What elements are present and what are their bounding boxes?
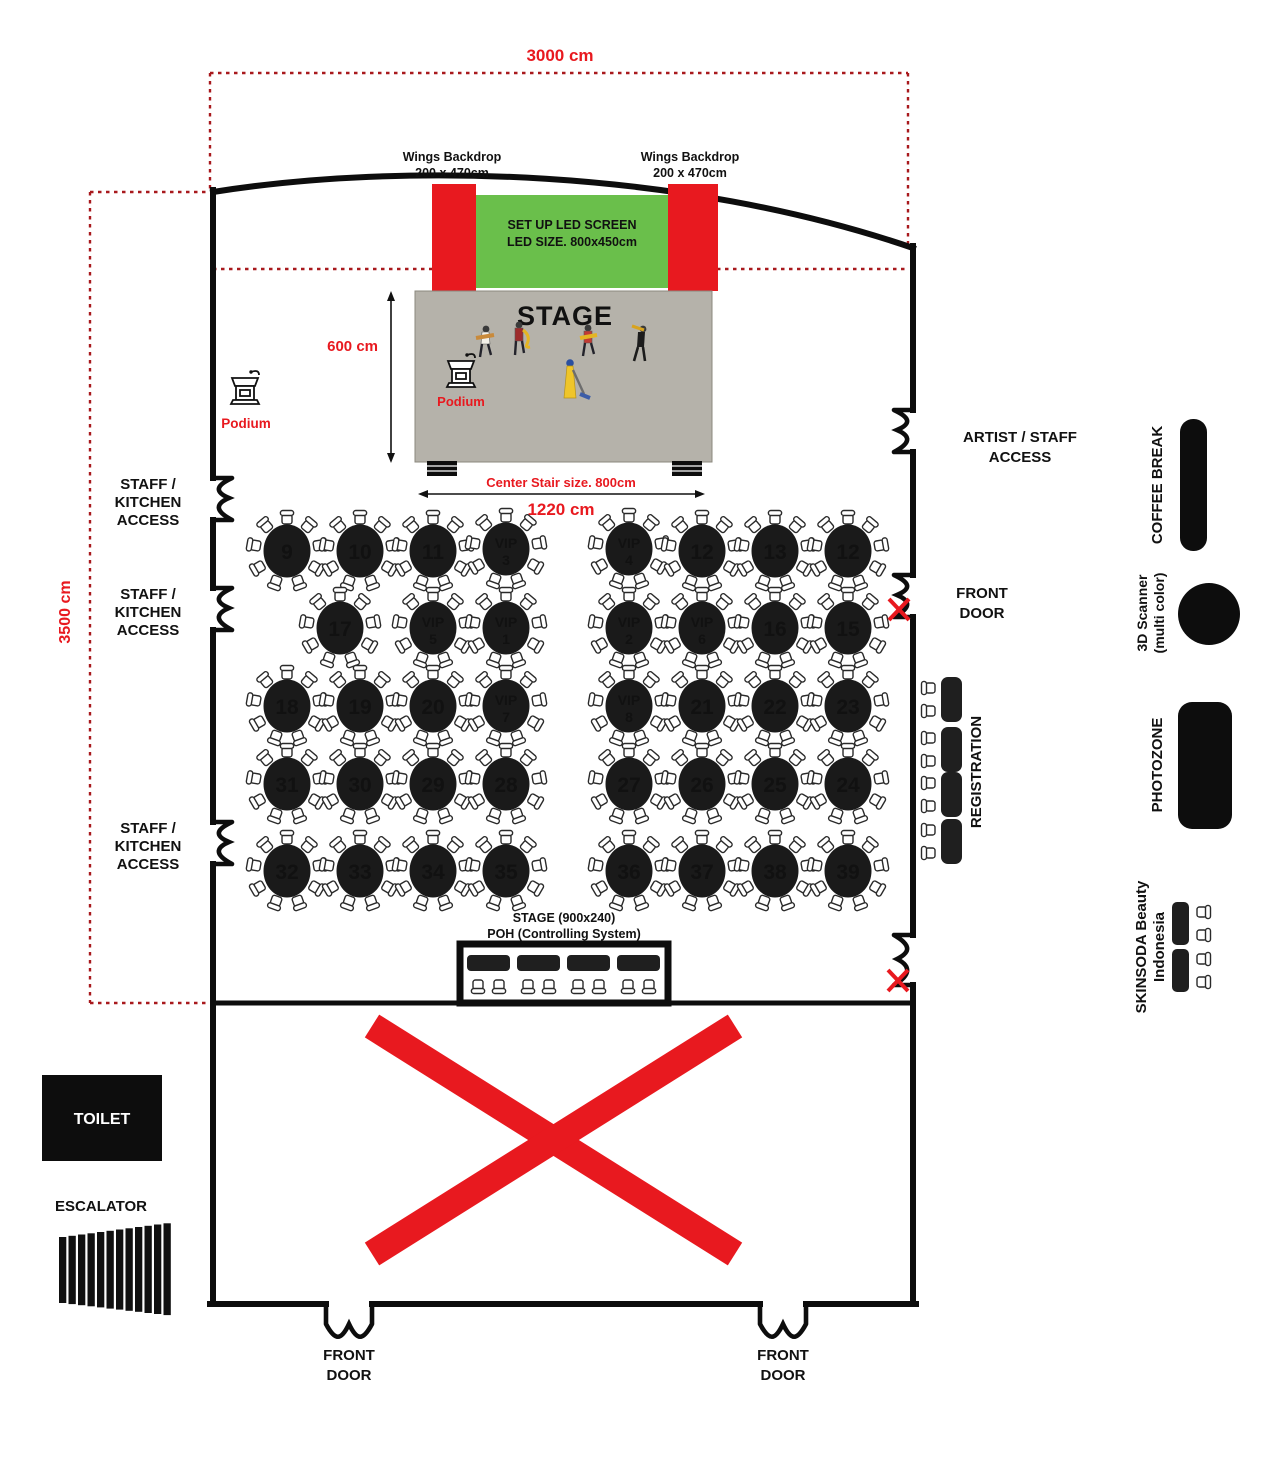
chair-icon [1197,975,1211,988]
front-door-bottom-right-label: FRONT DOOR [757,1347,809,1384]
chair-icon [737,714,755,732]
chair-icon [621,980,634,994]
chair-icon [873,770,889,785]
chair-icon [664,879,682,897]
skinsoda-desk [1172,949,1189,992]
chair-icon [922,704,936,717]
skinsoda-desks [1172,902,1211,992]
table-number: 13 [763,541,786,564]
scanner-area: 3D Scanner (multi color) [1134,573,1240,654]
chair-icon [588,857,604,872]
escalator-step [135,1227,142,1312]
table-number: 38 [763,861,787,884]
chair-icon [360,636,378,654]
wing-right-label-line1: Wings Backdrop [641,150,740,164]
chair-icon [841,744,854,758]
chair-icon [246,857,262,872]
chair-icon [737,559,755,577]
chair-icon [249,792,267,810]
table-21: 21 [661,666,743,747]
poh-desk [517,955,560,971]
chair-icon [280,744,293,758]
table-number: 18 [275,696,299,719]
chair-icon [807,857,823,872]
table-number: 37 [690,861,713,884]
chair-icon [499,666,512,680]
table-number: 2 [625,631,633,647]
chair-icon [868,559,886,577]
staff-kitchen-1-line2: KITCHEN [115,494,182,511]
table-number: 27 [617,774,640,797]
chair-icon [526,879,544,897]
wing-left-label-line2: 200 x 470cm [415,166,489,180]
table-31: 31 [246,744,328,825]
table-29: 29 [392,744,474,825]
scanner-label-line1: 3D Scanner [1134,574,1150,652]
chair-icon [319,857,335,872]
chair-icon [426,666,439,680]
chair-icon [695,588,708,602]
stage: STAGE [415,291,712,476]
chair-icon [810,879,828,897]
chair-icon [768,588,781,602]
chair-icon [1197,952,1211,965]
table-number: 22 [763,696,786,719]
table-label-vip: VIP [618,535,641,551]
registration-desk [941,677,962,722]
chair-icon [588,535,604,550]
table-17: 17 [299,588,381,669]
table-number: 9 [281,541,293,564]
chair-icon [588,614,604,629]
chair-icon [571,980,584,994]
chair-icon [468,636,486,654]
chair-icon [531,692,547,707]
table-13: 13 [734,511,816,592]
closed-door-x-2 [888,970,908,991]
chair-icon [661,692,677,707]
chair-icon [395,714,413,732]
table-37: 37 [661,831,743,912]
table-vip-8: VIP8 [588,666,670,747]
front-door-br-line1: FRONT [757,1347,809,1364]
registration-area: REGISTRATION [922,677,986,864]
table-34: 34 [392,831,474,912]
poh-desk [467,955,510,971]
table-11: 11 [392,511,474,592]
table-38: 38 [734,831,816,912]
chair-icon [868,879,886,897]
registration-desk [941,727,962,772]
table-number: 31 [275,774,299,797]
staff-kitchen-1-line3: ACCESS [117,512,180,529]
chair-icon [1197,905,1211,918]
photozone-booth [1178,702,1232,829]
table-number: 34 [421,861,445,884]
staff-kitchen-2-line1: STAFF / [120,586,176,603]
chair-icon [734,614,750,629]
chair-icon [465,770,481,785]
table-22: 22 [734,666,816,747]
chair-icon [249,879,267,897]
table-number: 10 [348,541,371,564]
chair-icon [841,831,854,845]
chair-icon [868,714,886,732]
table-20: 20 [392,666,474,747]
table-number: 11 [422,541,445,564]
table-number: 4 [625,552,633,568]
chair-icon [322,792,340,810]
table-number: 33 [348,861,371,884]
table-number: 30 [348,774,371,797]
chair-icon [622,831,635,845]
table-label-vip: VIP [495,692,518,708]
front-door-right-line2: DOOR [960,605,1005,622]
poh-desk [567,955,610,971]
chair-icon [322,714,340,732]
chair-icon [395,559,413,577]
table-number: 1 [502,631,510,647]
front-door-bottom-left-icon [326,1304,372,1337]
chair-icon [526,557,544,575]
scanner-label-line2: (multi color) [1151,573,1167,654]
chair-icon [246,537,262,552]
table-vip-7: VIP7 [465,666,547,747]
table-number: 36 [617,861,640,884]
escalator-step [97,1232,104,1307]
dim-600cm-label: 600 cm [327,338,378,355]
table-number: 20 [421,696,444,719]
staff-kitchen-access-1: STAFF / KITCHEN ACCESS [115,476,182,529]
chair-icon [392,770,408,785]
table-number: 26 [690,774,713,797]
table-12: 12 [807,511,889,592]
escalator-step [126,1228,133,1311]
artist-staff-access: ARTIST / STAFF ACCESS [963,429,1077,466]
skinsoda-area: SKINSODA Beauty Indonesia [1133,880,1211,1013]
chair-icon [873,614,889,629]
table-number: 25 [763,774,787,797]
chair-icon [841,511,854,525]
table-36: 36 [588,831,670,912]
table-number: 23 [836,696,859,719]
chair-icon [365,614,381,629]
chair-icon [426,744,439,758]
chair-icon [426,511,439,525]
coffee-break-counter [1180,419,1207,551]
chair-icon [542,980,555,994]
chair-icon [465,692,481,707]
toilet-area: TOILET [42,1075,162,1161]
table-vip-2: VIP2 [588,588,670,669]
chair-icon [922,823,936,836]
podium-outside-label: Podium [221,416,271,431]
coffee-break-label: COFFEE BREAK [1149,426,1166,545]
chair-icon [622,588,635,602]
table-label-vip: VIP [618,692,641,708]
chair-icon [1197,928,1211,941]
chair-icon [734,857,750,872]
table-number: 39 [836,861,859,884]
table-vip-1: VIP1 [465,588,547,669]
chair-icon [922,681,936,694]
chair-icon [246,770,262,785]
dim-3500cm-label: 3500 cm [57,580,74,643]
staff-kitchen-door-1-icon [213,478,232,520]
chair-icon [353,831,366,845]
table-number: 19 [348,696,371,719]
floor-plan: SET UP LED SCREEN LED SIZE. 800x450cm ST… [0,0,1280,1461]
escalator-icon [59,1223,171,1315]
chair-icon [592,980,605,994]
chair-icon [622,509,635,523]
chair-icon [695,831,708,845]
chair-icon [319,770,335,785]
chair-icon [395,879,413,897]
chair-icon [768,666,781,680]
wing-right-label-line2: 200 x 470cm [653,166,727,180]
chair-icon [453,559,471,577]
podium-outside-icon [231,370,259,404]
table-35: 35 [465,831,547,912]
chair-icon [810,714,828,732]
front-door-br-line2: DOOR [761,1367,806,1384]
staff-kitchen-door-3-icon [213,822,232,864]
chair-icon [531,857,547,872]
table-number: 7 [502,709,510,725]
table-number: 35 [494,861,518,884]
dim-1220cm-label: 1220 cm [527,500,594,519]
chair-icon [526,636,544,654]
skinsoda-label-line1: SKINSODA Beauty [1133,880,1150,1013]
chair-icon [249,714,267,732]
chair-icon [734,537,750,552]
escalator-step [154,1225,161,1315]
chair-icon [768,744,781,758]
photozone-label: PHOTOZONE [1149,718,1166,813]
chair-icon [319,537,335,552]
chair-icon [664,636,682,654]
chair-icon [531,535,547,550]
chair-icon [622,666,635,680]
table-number: 16 [763,618,786,641]
escalator-step [88,1233,95,1306]
chair-icon [246,692,262,707]
chair-icon [734,770,750,785]
wings-labels: Wings Backdrop 200 x 470cm Wings Backdro… [403,150,740,180]
escalator-step [116,1230,123,1310]
table-number: 15 [836,618,860,641]
chair-icon [922,776,936,789]
wing-backdrop-left [432,184,476,291]
staff-kitchen-3-line1: STAFF / [120,820,176,837]
chair-icon [280,666,293,680]
chair-icon [392,857,408,872]
chair-icon [526,792,544,810]
table-27: 27 [588,744,670,825]
table-9: 9 [246,511,328,592]
stage-stairs [427,461,702,476]
artist-access-line2: ACCESS [989,449,1052,466]
table-39: 39 [807,831,889,912]
chair-icon [591,792,609,810]
table-16: 16 [734,588,816,669]
chair-icon [841,666,854,680]
chair-icon [471,980,484,994]
chair-icon [661,614,677,629]
table-number: 12 [690,541,713,564]
table-number: 32 [275,861,298,884]
table-number: 28 [494,774,518,797]
chair-icon [426,588,439,602]
chair-icon [531,770,547,785]
front-door-bottom-right-icon [760,1304,806,1337]
table-24: 24 [807,744,889,825]
table-vip-4: VIP4 [588,509,670,590]
chair-icon [807,537,823,552]
chair-icon [695,666,708,680]
chair-icon [465,614,481,629]
escalator-step [78,1235,85,1306]
floor-plan-svg: SET UP LED SCREEN LED SIZE. 800x450cm ST… [0,0,1280,1461]
chair-icon [695,744,708,758]
escalator-step [164,1223,171,1315]
table-vip-3: VIP3 [465,509,547,590]
chair-icon [922,799,936,812]
chair-icon [249,559,267,577]
poh-desk [617,955,660,971]
chair-icon [392,614,408,629]
front-door-right-line1: FRONT [956,585,1008,602]
chair-icon [807,770,823,785]
front-door-bottom-left-label: FRONT DOOR [323,1347,375,1384]
chair-icon [353,511,366,525]
chair-icon [526,714,544,732]
chair-icon [922,754,936,767]
table-label-vip: VIP [618,614,641,630]
staff-kitchen-2-line3: ACCESS [117,622,180,639]
escalator-step [59,1237,66,1303]
dim-3000cm-label: 3000 cm [526,46,593,65]
chair-icon [922,846,936,859]
chair-icon [734,692,750,707]
tables-layer: 91011VIP3VIP412131217VIP5VIP1VIP2VIP6161… [246,509,889,912]
chair-icon [492,980,505,994]
stair-size-label: Center Stair size. 800cm [486,475,636,490]
chair-icon [499,744,512,758]
scanner-booth [1178,583,1240,645]
table-28: 28 [465,744,547,825]
chair-icon [322,559,340,577]
coffee-break-area: COFFEE BREAK [1149,419,1207,551]
chair-icon [807,614,823,629]
chair-icon [873,537,889,552]
chair-icon [622,744,635,758]
front-door-bl-line1: FRONT [323,1347,375,1364]
chair-icon [768,831,781,845]
artist-access-line1: ARTIST / STAFF [963,429,1077,446]
staff-kitchen-1-line1: STAFF / [120,476,176,493]
table-number: 21 [690,696,714,719]
chair-icon [868,636,886,654]
chair-icon [664,792,682,810]
chair-icon [426,831,439,845]
chair-icon [468,879,486,897]
table-18: 18 [246,666,328,747]
table-label-vip: VIP [422,614,445,630]
chair-icon [642,980,655,994]
chair-icon [664,559,682,577]
photozone-area: PHOTOZONE [1149,702,1232,829]
table-25: 25 [734,744,816,825]
chair-icon [465,535,481,550]
chair-icon [353,744,366,758]
chair-icon [392,692,408,707]
table-12: 12 [661,511,743,592]
chair-icon [922,731,936,744]
chair-icon [468,792,486,810]
chair-icon [591,636,609,654]
chair-icon [873,692,889,707]
chair-icon [737,879,755,897]
registration-desks [922,677,963,864]
chair-icon [841,588,854,602]
chair-icon [737,792,755,810]
artist-access-door-icon [894,410,913,452]
chair-icon [319,692,335,707]
table-33: 33 [319,831,401,912]
chair-icon [591,879,609,897]
table-23: 23 [807,666,889,747]
table-10: 10 [319,511,401,592]
chair-icon [664,714,682,732]
escalator-step [69,1236,76,1304]
table-19: 19 [319,666,401,747]
table-number: 29 [421,774,444,797]
table-number: 6 [698,631,706,647]
closed-area-x-mark [372,1026,735,1254]
staff-kitchen-door-2-icon [213,588,232,630]
chair-icon [353,666,366,680]
staff-kitchen-access-3: STAFF / KITCHEN ACCESS [115,820,182,873]
chair-icon [873,857,889,872]
registration-desk [941,819,962,864]
stage-title: STAGE [517,301,613,331]
chair-icon [810,792,828,810]
chair-icon [868,792,886,810]
wing-backdrop-right [668,184,718,291]
poh-area: STAGE (900x240) POH (Controlling System) [460,911,668,1003]
chair-icon [299,614,315,629]
table-number: 12 [836,541,859,564]
table-number: 8 [625,709,633,725]
chair-icon [468,714,486,732]
chair-icon [531,614,547,629]
chair-icon [302,636,320,654]
table-label-vip: VIP [691,614,714,630]
chair-icon [695,511,708,525]
escalator-label: ESCALATOR [55,1198,147,1215]
chair-icon [521,980,534,994]
stage-backdrop: SET UP LED SCREEN LED SIZE. 800x450cm [432,184,718,291]
chair-icon [499,831,512,845]
wing-left-label-line1: Wings Backdrop [403,150,502,164]
staff-kitchen-3-line3: ACCESS [117,856,180,873]
chair-icon [395,792,413,810]
chair-icon [661,537,677,552]
table-label-vip: VIP [495,535,518,551]
chair-icon [768,511,781,525]
